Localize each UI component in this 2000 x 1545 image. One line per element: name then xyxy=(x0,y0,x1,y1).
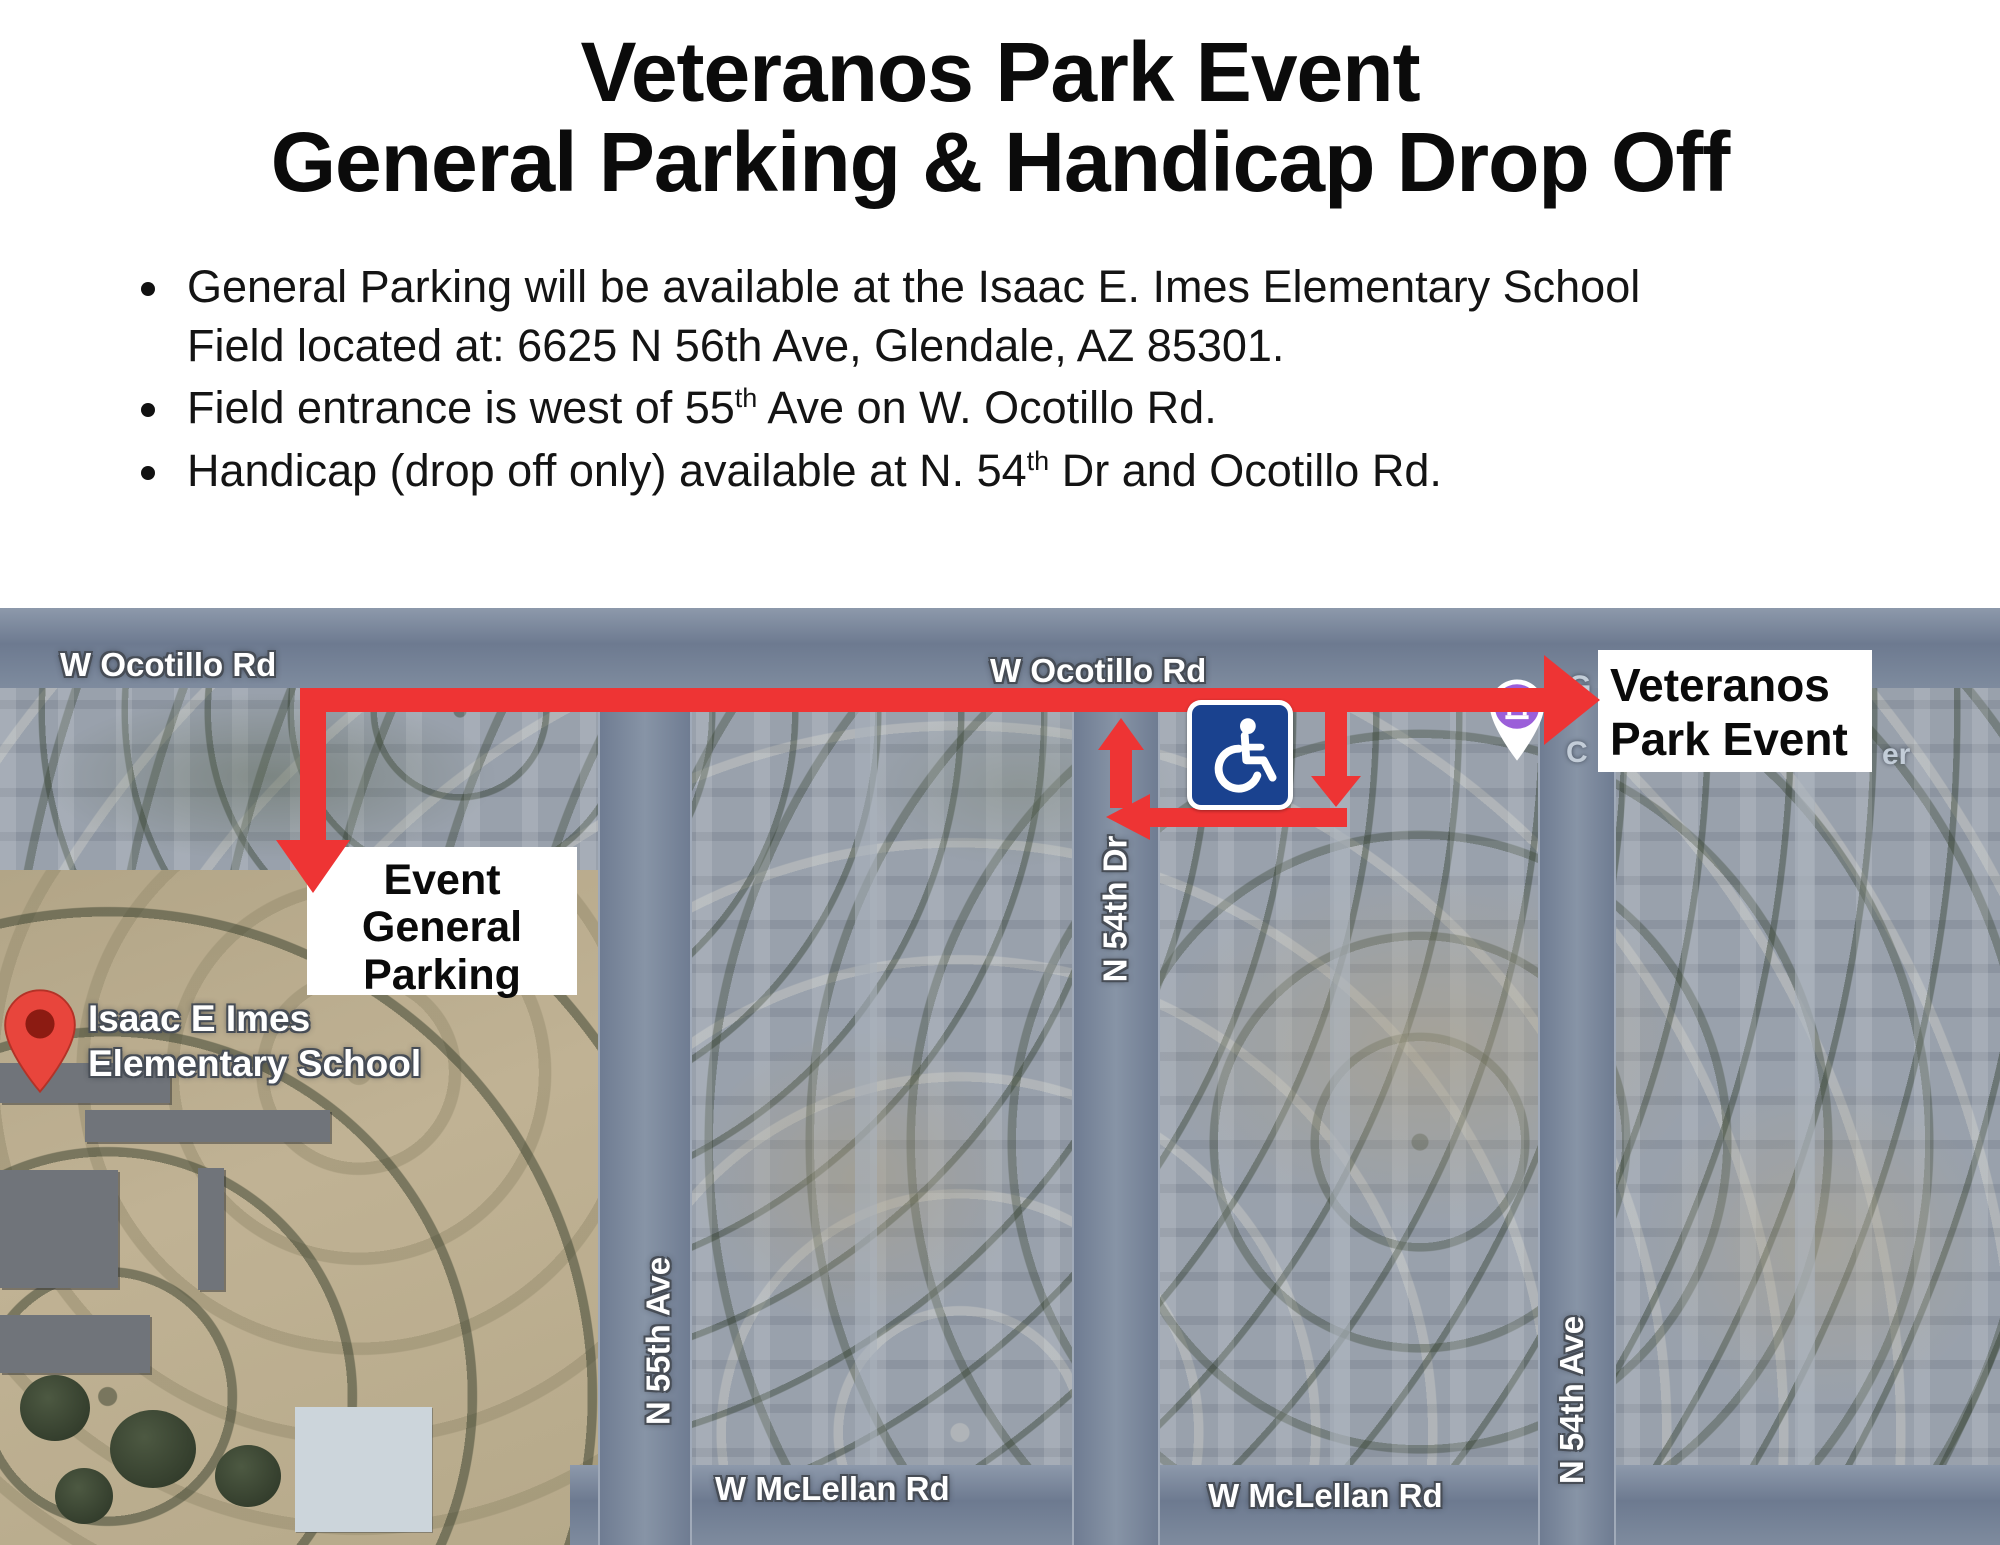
loop-down-shaft xyxy=(1325,710,1347,776)
bullet-general-parking: General Parking will be available at the… xyxy=(135,258,1895,375)
loop-up-shaft xyxy=(1110,750,1132,808)
wheelchair-icon xyxy=(1192,705,1288,805)
bullet-field-entrance: Field entrance is west of 55th Ave on W.… xyxy=(135,379,1895,438)
school-court xyxy=(295,1407,432,1532)
location-pin-icon xyxy=(2,986,78,1096)
tree xyxy=(55,1468,113,1524)
satellite-map: G C er W Ocotillo Rd W Ocotillo Rd W McL… xyxy=(0,608,2000,1545)
map-label-fragment: er xyxy=(1882,738,1910,772)
school-building xyxy=(198,1168,224,1290)
school-building xyxy=(85,1110,330,1142)
page-title: Veteranos Park Event General Parking & H… xyxy=(0,28,2000,208)
tree xyxy=(20,1375,90,1441)
alley xyxy=(855,688,877,1465)
road-label-54th-dr: N 54th Dr xyxy=(1097,824,1135,995)
school-building xyxy=(0,1315,150,1373)
school-building xyxy=(0,1170,118,1288)
info-bullet-list: General Parking will be available at the… xyxy=(135,258,1895,504)
road-label-mclellan-right: W McLellan Rd xyxy=(1208,1477,1443,1515)
loop-left-shaft xyxy=(1150,808,1347,827)
alley xyxy=(1795,688,1815,1465)
tree xyxy=(215,1445,281,1507)
road-label-55th-ave: N 55th Ave xyxy=(640,1243,678,1440)
route-arrow-right-icon xyxy=(1544,655,1600,745)
route-left-branch-shaft xyxy=(300,688,326,840)
loop-arrow-up-icon xyxy=(1098,718,1144,750)
page-title-line2: General Parking & Handicap Drop Off xyxy=(0,118,2000,208)
road-label-ocotillo-left: W Ocotillo Rd xyxy=(60,646,276,684)
bullet-handicap-dropoff: Handicap (drop off only) available at N.… xyxy=(135,442,1895,501)
flyer-page: Veteranos Park Event General Parking & H… xyxy=(0,0,2000,1545)
route-main-shaft xyxy=(300,688,1544,712)
road-label-ocotillo-center: W Ocotillo Rd xyxy=(990,652,1206,690)
school-poi-label: Isaac E Imes Elementary School xyxy=(88,996,421,1086)
road-label-mclellan-left: W McLellan Rd xyxy=(715,1470,950,1508)
loop-arrow-down-icon xyxy=(1311,776,1361,807)
route-arrow-down-icon xyxy=(276,840,350,893)
road-label-54th-ave: N 54th Ave xyxy=(1553,1305,1591,1495)
handicap-sign xyxy=(1187,700,1293,810)
veteranos-park-event-callout: Veteranos Park Event xyxy=(1598,650,1872,772)
page-title-line1: Veteranos Park Event xyxy=(0,28,2000,118)
tree xyxy=(110,1410,196,1488)
